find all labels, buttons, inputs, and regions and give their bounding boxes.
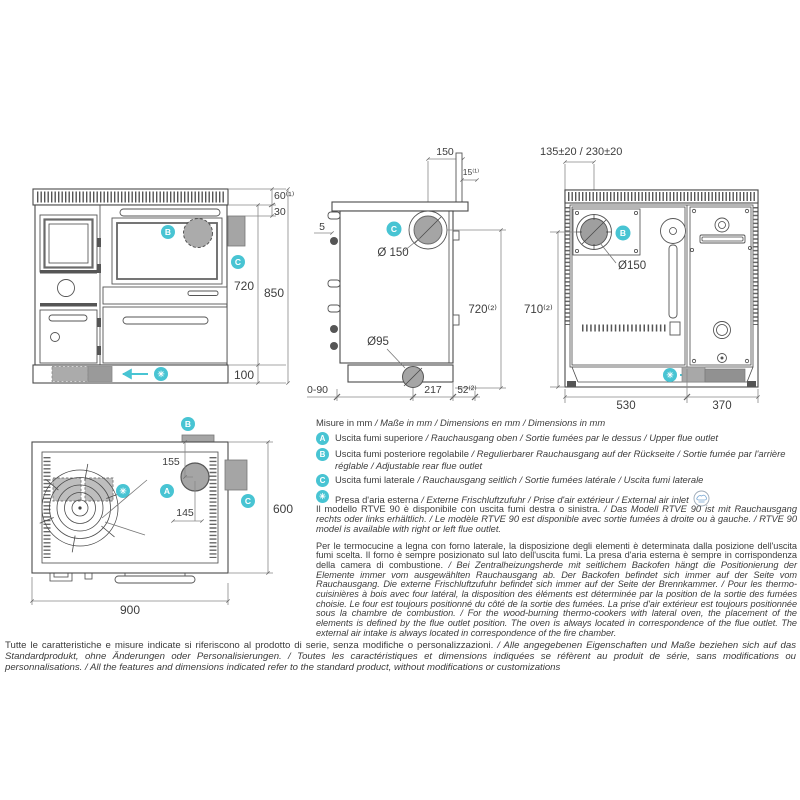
paragraph-availability: Il modello RTVE 90 è disponibile con usc… bbox=[316, 504, 797, 535]
rear-view-drawing: 135±20 / 230±20 B Ø150 bbox=[522, 145, 800, 415]
badge-c: C bbox=[387, 222, 402, 237]
dim-label-60: 60⁽¹⁾ bbox=[274, 190, 295, 202]
dim-label-flue-150: Ø 150 bbox=[377, 247, 408, 259]
svg-text:B: B bbox=[185, 419, 191, 429]
front-lower-handle bbox=[49, 315, 87, 321]
dim-label-217: 217 bbox=[424, 384, 442, 396]
dim-label-135-230: 135±20 / 230±20 bbox=[540, 146, 622, 158]
legend-item-c: C Uscita fumi laterale / Rauchausgang se… bbox=[316, 474, 797, 487]
front-oven-handle bbox=[120, 209, 220, 216]
dim-label-95: Ø95 bbox=[367, 336, 389, 348]
dim-label-100: 100 bbox=[234, 368, 254, 382]
dim-label-600: 600 bbox=[273, 502, 293, 516]
badge-c: C bbox=[241, 494, 255, 508]
paragraph-layout-note: Per le termocucine a legna con forno lat… bbox=[316, 542, 797, 639]
svg-text:B: B bbox=[620, 228, 626, 238]
dim-label-0-90: 0-90 bbox=[307, 384, 328, 396]
rear-disc bbox=[661, 219, 686, 244]
badge-air: ✳ bbox=[316, 490, 329, 503]
side-plinth bbox=[348, 365, 453, 382]
dim-label-850: 850 bbox=[264, 286, 284, 300]
dim-label-5: 5 bbox=[319, 221, 325, 233]
front-drawer-handle bbox=[123, 317, 208, 324]
svg-text:C: C bbox=[245, 496, 251, 506]
svg-text:✳: ✳ bbox=[666, 370, 674, 380]
front-drawer-knob bbox=[58, 280, 75, 297]
top-body bbox=[32, 442, 228, 573]
badge-a: A bbox=[316, 432, 329, 445]
description-paragraphs: Il modello RTVE 90 è disponibile con usc… bbox=[316, 504, 797, 638]
dim-label-370: 370 bbox=[712, 400, 731, 412]
dim-label-150: 150 bbox=[436, 146, 454, 158]
svg-text:✳: ✳ bbox=[119, 486, 127, 496]
svg-text:✳: ✳ bbox=[157, 369, 165, 379]
front-view-drawing: ✳ C B 60⁽¹⁾ 30 720 850 100 bbox=[28, 160, 318, 410]
dim-label-155: 155 bbox=[162, 456, 180, 468]
dim-label-flue-150: Ø150 bbox=[618, 260, 646, 272]
badge-a: A bbox=[160, 484, 174, 498]
units-note: Misure in mm / Maße in mm / Dimensions e… bbox=[316, 417, 797, 428]
datasheet-page: { "accent": "#48c4d3", "gray_fill": "#a5… bbox=[0, 0, 800, 800]
legend-item-b: B Uscita fumi posteriore regolabile / Re… bbox=[316, 448, 797, 471]
dim-label-145: 145 bbox=[176, 507, 194, 519]
badge-air: ✳ bbox=[154, 367, 168, 381]
badge-b: B bbox=[316, 448, 329, 461]
top-side-flue-box bbox=[225, 460, 247, 490]
dim-label-15: 15⁽¹⁾ bbox=[463, 167, 479, 177]
front-side-flue-box bbox=[228, 216, 245, 246]
dim-label-710: 710⁽²⁾ bbox=[524, 303, 553, 316]
badge-b: B bbox=[616, 226, 631, 241]
badge-b: B bbox=[161, 225, 175, 239]
dim-label-530: 530 bbox=[616, 400, 635, 412]
badge-air: ✳ bbox=[663, 368, 677, 382]
front-flue-hidden-circle bbox=[184, 219, 213, 248]
dim-label-720: 720⁽²⁾ bbox=[468, 303, 497, 316]
badge-c: C bbox=[231, 255, 245, 269]
dim-label-30: 30 bbox=[274, 206, 286, 218]
svg-text:B: B bbox=[165, 227, 171, 237]
dim-label-900: 900 bbox=[120, 603, 140, 617]
top-view-drawing: B ✳ A 155 145 C bbox=[25, 415, 315, 627]
svg-text:C: C bbox=[235, 257, 241, 267]
top-front-handle bbox=[115, 576, 195, 583]
dim-label-720: 720 bbox=[234, 279, 254, 293]
legend-item-a: A Uscita fumi superiore / Rauchausgang o… bbox=[316, 432, 797, 445]
legend: Misure in mm / Maße in mm / Dimensions e… bbox=[316, 417, 797, 510]
svg-text:A: A bbox=[164, 486, 170, 496]
badge-c: C bbox=[316, 474, 329, 487]
dim-label-52: 52⁽²⁾ bbox=[457, 385, 476, 396]
svg-text:C: C bbox=[391, 224, 397, 234]
badge-b: B bbox=[181, 417, 195, 431]
footer-note: Tutte le caratteristiche e misure indica… bbox=[5, 640, 796, 673]
side-rear-pipe bbox=[456, 153, 462, 202]
side-countertop bbox=[332, 202, 468, 211]
